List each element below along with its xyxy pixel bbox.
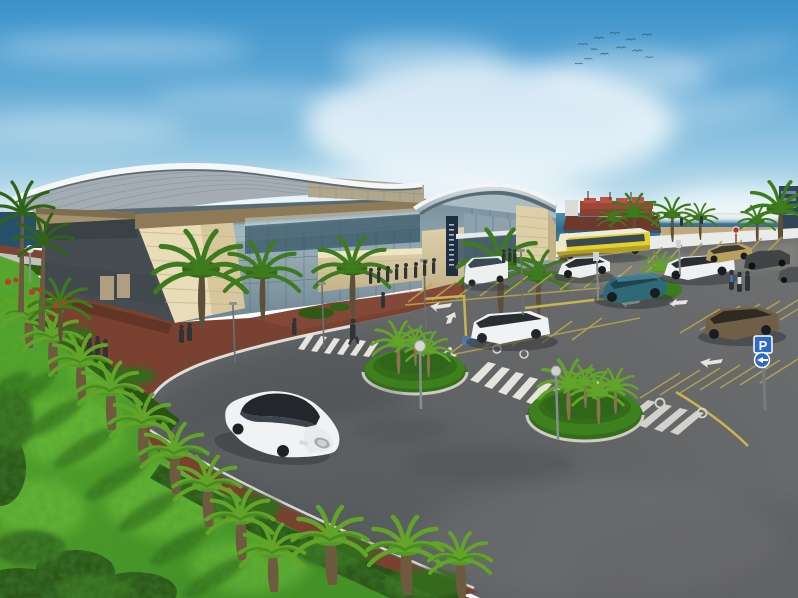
- svg-text:P: P: [759, 338, 768, 353]
